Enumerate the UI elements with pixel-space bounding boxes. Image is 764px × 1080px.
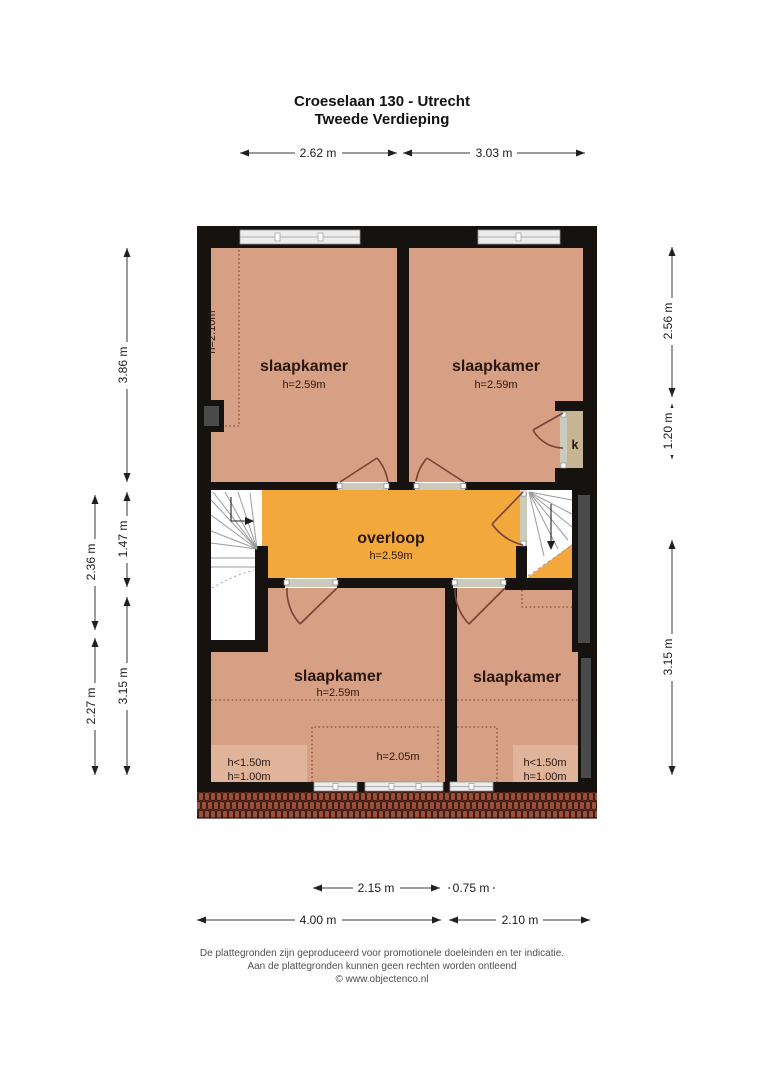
dim-label: 2.62 m: [300, 146, 337, 160]
low-ceiling-right-line1: h<1.50m: [523, 757, 566, 769]
dim-left-outer-2: 2.27 m: [84, 638, 102, 775]
dim-bottom1-2: 0.75 m: [448, 880, 495, 895]
dim-right-3: 3.15 m: [661, 540, 679, 775]
dim-left-outer-1: 2.36 m: [84, 495, 102, 630]
wall-niche-upper: [578, 495, 590, 643]
chimney-flue: [204, 406, 219, 426]
wall-stair-right-stub: [516, 546, 527, 588]
dim-label: 2.36 m: [84, 544, 98, 581]
threshold-closet: [560, 412, 567, 468]
dormer-height-label: h=2.05m: [376, 751, 419, 763]
wall-landing-north-1: [211, 482, 338, 490]
footer: De plattegronden zijn geproduceerd voor …: [200, 948, 564, 985]
bedroom-top-right-label: slaapkamer: [452, 358, 540, 375]
title-line2: Tweede Verdieping: [315, 111, 450, 128]
dim-left-inner-1: 3.86 m: [116, 248, 134, 482]
footer-line1: De plattegronden zijn geproduceerd voor …: [200, 948, 564, 959]
threshold-bedroom-top-left: [337, 483, 389, 490]
wall-niche-lower: [581, 658, 591, 778]
window-top-right: [478, 230, 560, 244]
wall-landing-north-2: [388, 482, 415, 490]
dim-label: 0.75 m: [453, 881, 490, 895]
dim-label: 3.15 m: [116, 668, 130, 705]
bedroom-bottom-right-label: slaapkamer: [473, 669, 561, 686]
dim-top-2: 3.03 m: [403, 145, 585, 160]
dim-label: 3.86 m: [116, 347, 130, 384]
dim-left-inner-2: 1.47 m: [116, 492, 134, 587]
threshold-stair-right: [520, 491, 527, 546]
wall-divider-top-bedrooms: [397, 248, 409, 490]
wall-stairwell-bottom: [197, 640, 268, 652]
wall-landing-south-2: [337, 578, 453, 588]
wall-landing-south-1: [268, 578, 285, 588]
stairwell-void-bottom: [211, 588, 255, 640]
landing-label: overloop: [357, 530, 425, 547]
dim-top-1: 2.62 m: [240, 145, 397, 160]
threshold-bedroom-top-right: [414, 483, 466, 490]
bedroom-bottom-left-height: h=2.59m: [316, 687, 359, 699]
landing-height: h=2.59m: [369, 550, 412, 562]
threshold-bedroom-bottom-right: [452, 579, 506, 587]
window-bottom-2: [365, 782, 443, 791]
bedroom-bottom-left-label: slaapkamer: [294, 668, 382, 685]
roof-tiles: [197, 792, 597, 818]
dim-right-1: 2.56 m: [661, 247, 679, 397]
dim-label: 2.15 m: [358, 881, 395, 895]
closet-label: k: [572, 438, 579, 452]
bedroom-top-left-height: h=2.59m: [282, 379, 325, 391]
low-ceiling-left-line2: h=1.00m: [227, 771, 270, 783]
wall-closet-top: [555, 401, 583, 411]
dim-label: 4.00 m: [300, 913, 337, 927]
dim-label: 1.47 m: [116, 521, 130, 558]
dim-label: 2.27 m: [84, 688, 98, 725]
dim-bottom2-1: 4.00 m: [197, 912, 441, 927]
dim-left-inner-3: 3.15 m: [116, 597, 134, 775]
bedroom-top-left-label: slaapkamer: [260, 358, 348, 375]
dim-label: 3.03 m: [476, 146, 513, 160]
window-top-left: [240, 230, 360, 244]
footer-line2: Aan de plattegronden kunnen geen rechten…: [247, 961, 516, 972]
low-ceiling-left-line1: h<1.50m: [227, 757, 270, 769]
wall-right-upper: [583, 226, 597, 492]
low-ceiling-right-line2: h=1.00m: [523, 771, 566, 783]
sloped-ceiling-label: h=2.10m: [206, 310, 218, 353]
bedroom-top-right-height: h=2.59m: [474, 379, 517, 391]
floorplan-canvas: Croeselaan 130 - Utrecht Tweede Verdiepi…: [0, 0, 764, 1080]
threshold-bedroom-bottom-left: [284, 579, 338, 587]
window-bottom-1: [314, 782, 357, 791]
dim-label: 1.20 m: [661, 413, 675, 450]
dim-bottom1-1: 2.15 m: [313, 880, 440, 895]
window-bottom-3: [450, 782, 493, 791]
dim-label: 2.56 m: [661, 303, 675, 340]
title-line1: Croeselaan 130 - Utrecht: [294, 93, 470, 110]
wall-divider-bottom-bedrooms: [445, 588, 457, 782]
dim-right-2: 1.20 m: [661, 404, 679, 459]
dim-label: 2.10 m: [502, 913, 539, 927]
wall-stairwell-right: [255, 546, 268, 652]
footer-line3: © www.objectenco.nl: [336, 974, 429, 985]
floorplan-page: Croeselaan 130 - Utrecht Tweede Verdiepi…: [0, 0, 764, 1080]
roof-edge: [197, 792, 597, 818]
wall-closet-bottom: [555, 468, 583, 490]
dim-label: 3.15 m: [661, 639, 675, 676]
dim-bottom2-2: 2.10 m: [449, 912, 590, 927]
